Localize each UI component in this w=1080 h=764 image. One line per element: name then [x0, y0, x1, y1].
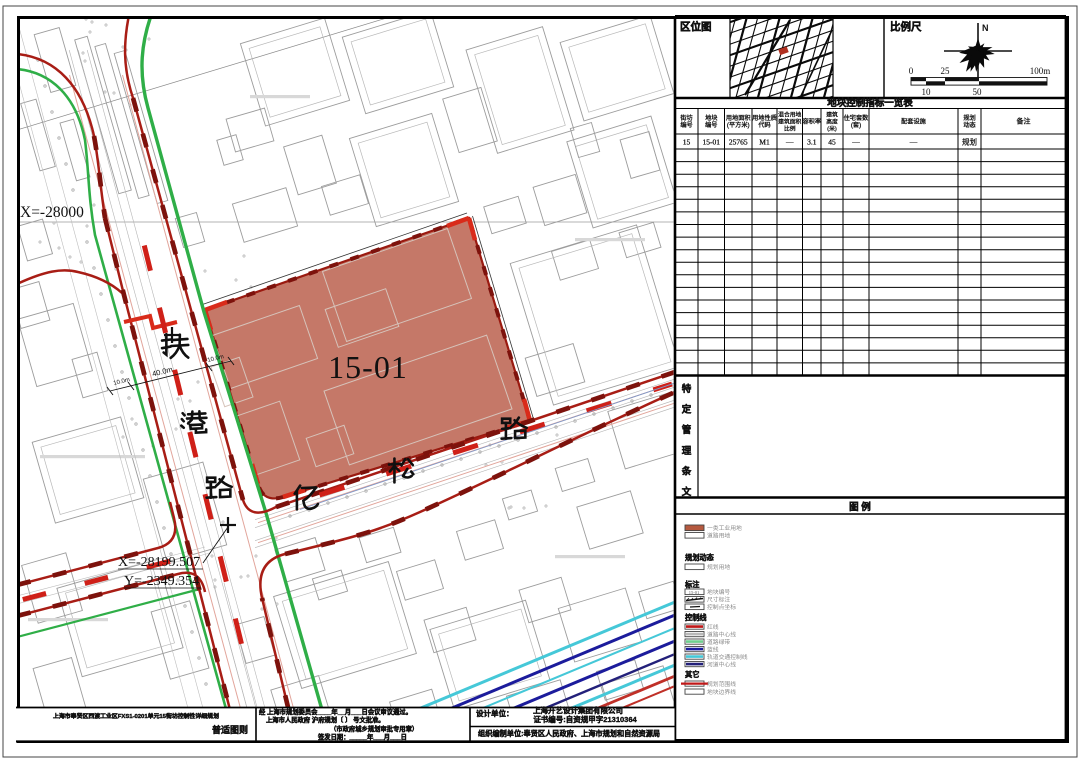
svg-text:（市政府城乡规划审批专用章）: （市政府城乡规划审批专用章） [330, 724, 418, 733]
svg-text:规划: 规划 [963, 114, 975, 122]
svg-text:控制点坐标: 控制点坐标 [707, 603, 736, 611]
svg-text:特: 特 [682, 383, 692, 395]
svg-text:地块边界线: 地块边界线 [707, 688, 736, 696]
svg-text:地块控制指标一览表: 地块控制指标一览表 [827, 97, 913, 109]
svg-text:上海开艺设计集团有限公司: 上海开艺设计集团有限公司 [533, 705, 623, 715]
svg-text:规划: 规划 [962, 137, 977, 147]
svg-text:(套): (套) [851, 121, 861, 129]
svg-text:标注: 标注 [684, 580, 700, 589]
svg-text:设计单位：: 设计单位： [476, 708, 514, 718]
svg-text:条: 条 [681, 465, 692, 477]
svg-text:配套设施: 配套设施 [901, 117, 926, 125]
svg-text:文: 文 [681, 486, 692, 498]
svg-text:15: 15 [683, 138, 691, 147]
svg-text:河道中心线: 河道中心线 [707, 661, 736, 669]
svg-text:地块编号: 地块编号 [707, 588, 730, 596]
svg-text:道路用地: 道路用地 [707, 532, 730, 540]
svg-text:15-01: 15-01 [703, 138, 721, 147]
svg-text:备注: 备注 [1017, 116, 1031, 125]
svg-text:比例尺: 比例尺 [890, 20, 922, 33]
svg-text:建筑: 建筑 [826, 110, 838, 118]
svg-text:0: 0 [909, 66, 914, 76]
svg-text:定: 定 [681, 404, 692, 416]
svg-text:尺寸标注: 尺寸标注 [707, 596, 730, 604]
svg-text:证书编号:自资规甲字21310364: 证书编号:自资规甲字21310364 [533, 714, 637, 724]
svg-text:—: — [785, 138, 794, 147]
svg-text:混合用地: 混合用地 [778, 110, 801, 118]
svg-text:50: 50 [973, 87, 983, 97]
svg-text:—: — [851, 138, 860, 147]
svg-text:经 上海市规划委员会____年__月___日会议审议通过。: 经 上海市规划委员会____年__月___日会议审议通过。 [259, 707, 412, 716]
svg-text:区位图: 区位图 [680, 20, 712, 33]
svg-text:25765: 25765 [729, 138, 748, 147]
svg-text:道路绿带: 道路绿带 [707, 638, 730, 646]
svg-text:红线: 红线 [707, 623, 719, 631]
svg-text:45: 45 [828, 138, 836, 147]
svg-text:100m: 100m [1030, 66, 1051, 76]
svg-text:用地面积: 用地面积 [726, 114, 751, 122]
svg-text:其它: 其它 [685, 670, 699, 679]
svg-text:X=-28199.507: X=-28199.507 [118, 555, 200, 570]
svg-text:一类工业用地: 一类工业用地 [707, 524, 742, 532]
svg-text:15-01: 15-01 [689, 590, 700, 595]
svg-text:X=-28000: X=-28000 [20, 204, 84, 221]
svg-text:规划用地: 规划用地 [707, 563, 730, 571]
svg-text:规划动态: 规划动态 [684, 553, 715, 562]
svg-text:建筑面积: 建筑面积 [778, 117, 801, 125]
svg-text:理: 理 [682, 446, 692, 457]
svg-text:动态: 动态 [963, 121, 975, 129]
svg-text:地块: 地块 [705, 114, 717, 122]
svg-text:容积率: 容积率 [802, 117, 821, 125]
svg-text:M1: M1 [759, 138, 770, 147]
svg-text:轨道交通控制线: 轨道交通控制线 [707, 653, 748, 661]
svg-text:上海市奉贤区西渡工业区FXS1-0201单元15街坊控制性详: 上海市奉贤区西渡工业区FXS1-0201单元15街坊控制性详细规划 [53, 712, 219, 720]
svg-text:住宅套数: 住宅套数 [844, 114, 870, 122]
svg-text:规划范围线: 规划范围线 [707, 680, 736, 688]
svg-text:签发日期：_____年___月___日: 签发日期：_____年___月___日 [317, 732, 407, 741]
svg-text:(米): (米) [827, 125, 837, 133]
svg-text:控制线: 控制线 [685, 613, 707, 622]
svg-text:道路中心线: 道路中心线 [707, 631, 736, 639]
svg-text:编号: 编号 [705, 121, 717, 129]
svg-text:编号: 编号 [680, 121, 692, 129]
svg-text:图 例: 图 例 [849, 501, 871, 513]
svg-text:组织编制单位:奉贤区人民政府、上海市规划和自然资源局: 组织编制单位:奉贤区人民政府、上海市规划和自然资源局 [478, 729, 660, 738]
svg-text:比例: 比例 [784, 125, 796, 133]
svg-text:上海市人民政府 沪府规划〔 〕 号文: 上海市人民政府 沪府规划〔 〕 号文批准。 [266, 715, 385, 724]
svg-text:3.1: 3.1 [807, 138, 817, 147]
svg-text:管: 管 [682, 424, 692, 436]
svg-text:25: 25 [941, 66, 951, 76]
svg-text:街坊: 街坊 [680, 114, 692, 122]
svg-text:15-01: 15-01 [328, 349, 408, 385]
svg-text:(平方米): (平方米) [727, 121, 750, 129]
svg-text:N: N [982, 23, 989, 33]
svg-text:—: — [909, 138, 918, 147]
svg-text:高度: 高度 [826, 117, 838, 125]
svg-text:代码: 代码 [758, 121, 770, 129]
svg-text:用地性质: 用地性质 [752, 114, 777, 122]
svg-text:蓝线: 蓝线 [707, 646, 719, 654]
svg-text:Y=-2349.354: Y=-2349.354 [124, 574, 199, 589]
svg-text:10: 10 [922, 87, 932, 97]
svg-text:普适图则: 普适图则 [212, 724, 248, 735]
